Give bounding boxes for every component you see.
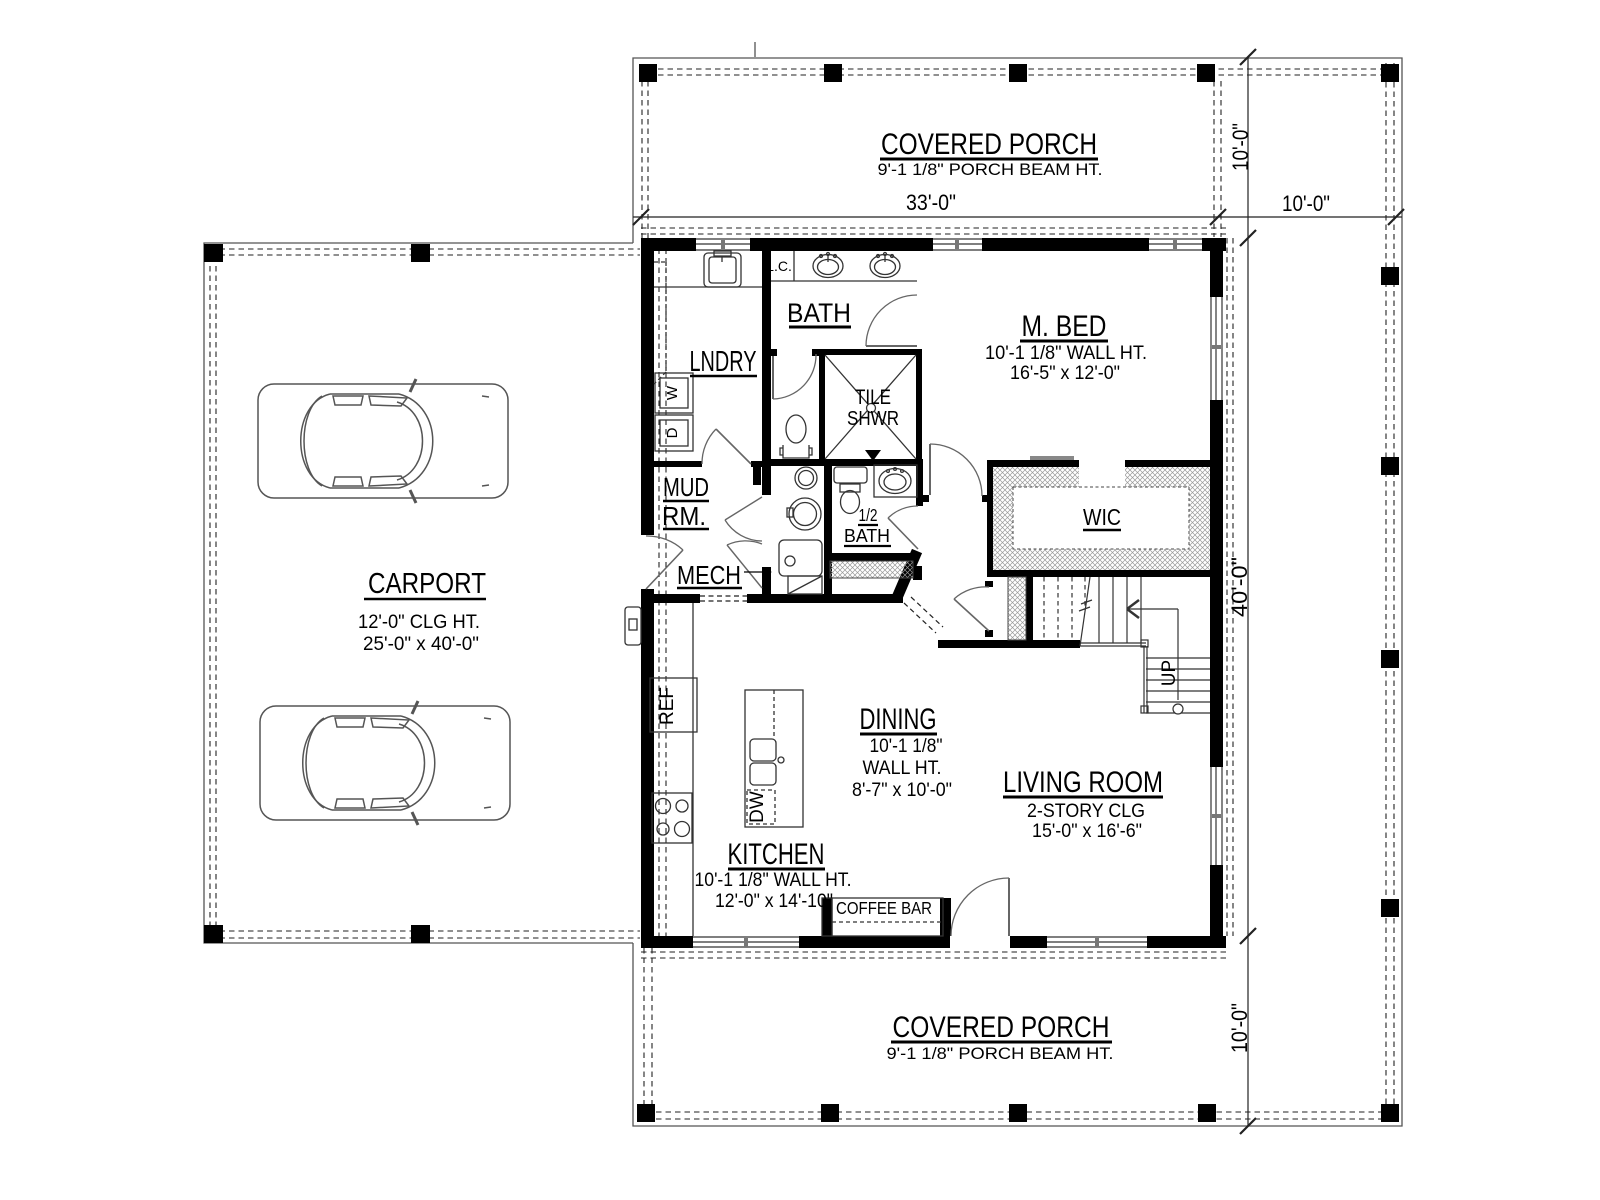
svg-text:COVERED PORCH: COVERED PORCH: [881, 128, 1097, 161]
svg-text:D: D: [664, 427, 681, 438]
svg-text:WIC: WIC: [1083, 504, 1121, 530]
svg-text:1/2: 1/2: [859, 505, 878, 525]
svg-text:DW: DW: [747, 791, 768, 823]
svg-text:LIVING ROOM: LIVING ROOM: [1003, 766, 1163, 799]
svg-text:BATH: BATH: [844, 525, 890, 546]
svg-text:LNDRY: LNDRY: [690, 346, 757, 378]
svg-text:2-STORY CLG: 2-STORY CLG: [1027, 800, 1145, 822]
svg-text:16'-5" x 12'-0": 16'-5" x 12'-0": [1010, 362, 1120, 384]
svg-text:RM.: RM.: [662, 501, 706, 531]
svg-text:M. BED: M. BED: [1022, 310, 1107, 343]
svg-text:25'-0" x 40'-0": 25'-0" x 40'-0": [363, 633, 479, 655]
svg-text:CARPORT: CARPORT: [368, 568, 486, 600]
svg-text:33'-0": 33'-0": [906, 190, 956, 215]
svg-text:UP: UP: [1159, 660, 1180, 686]
svg-text:8'-7" x 10'-0": 8'-7" x 10'-0": [852, 779, 952, 801]
svg-text:9'-1 1/8" PORCH BEAM HT.: 9'-1 1/8" PORCH BEAM HT.: [887, 1045, 1114, 1063]
svg-text:15'-0" x 16'-6": 15'-0" x 16'-6": [1032, 820, 1142, 842]
svg-text:12'-0" CLG HT.: 12'-0" CLG HT.: [358, 611, 480, 633]
svg-text:12'-0" x 14'-10": 12'-0" x 14'-10": [715, 890, 833, 912]
svg-text:COVERED PORCH: COVERED PORCH: [893, 1011, 1110, 1044]
svg-text:W: W: [664, 385, 681, 400]
svg-text:40'-0": 40'-0": [1227, 557, 1252, 617]
svg-text:MECH: MECH: [677, 560, 741, 590]
svg-text:10'-1 1/8" WALL HT.: 10'-1 1/8" WALL HT.: [985, 342, 1147, 364]
svg-text:10'-0": 10'-0": [1228, 123, 1253, 171]
svg-text:MUD: MUD: [663, 472, 709, 502]
svg-text:DINING: DINING: [860, 703, 937, 736]
svg-text:L.C.: L.C.: [766, 258, 792, 274]
svg-text:COFFEE BAR: COFFEE BAR: [836, 898, 932, 918]
svg-text:KITCHEN: KITCHEN: [728, 838, 825, 871]
svg-text:SHWR: SHWR: [847, 408, 899, 430]
svg-text:10'-0": 10'-0": [1282, 191, 1330, 216]
svg-text:9'-1 1/8" PORCH BEAM HT.: 9'-1 1/8" PORCH BEAM HT.: [878, 161, 1103, 179]
svg-text:REF: REF: [657, 687, 678, 725]
svg-text:10'-1 1/8" WALL HT.: 10'-1 1/8" WALL HT.: [695, 869, 852, 891]
svg-text:BATH: BATH: [787, 298, 851, 328]
svg-text:10'-0": 10'-0": [1227, 1003, 1252, 1053]
svg-text:10'-1 1/8": 10'-1 1/8": [870, 735, 943, 757]
svg-text:TILE: TILE: [855, 386, 891, 409]
svg-text:WALL HT.: WALL HT.: [863, 757, 942, 779]
